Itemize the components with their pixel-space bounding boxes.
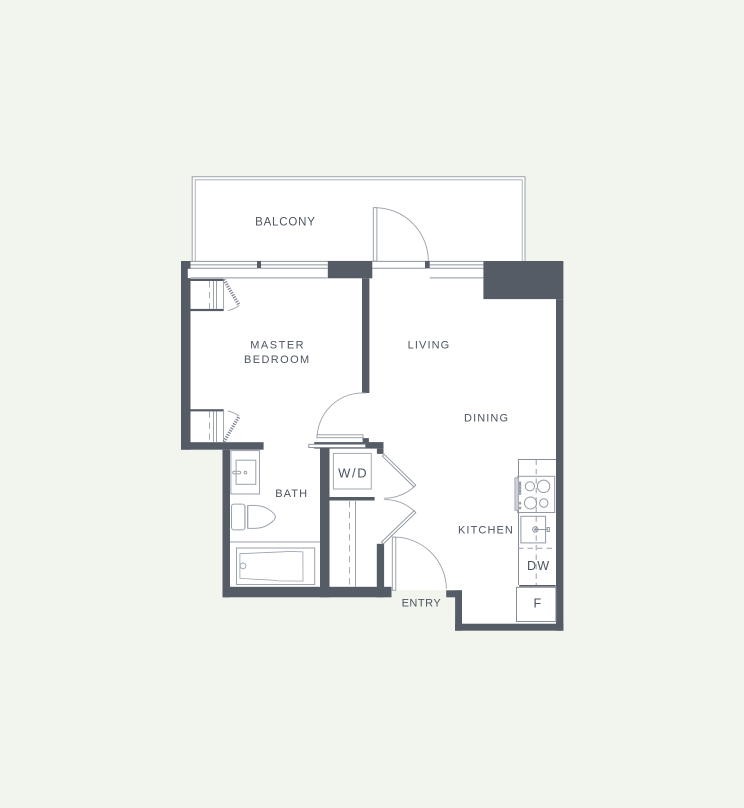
svg-text:W/D: W/D <box>338 465 368 480</box>
svg-text:LIVING: LIVING <box>408 340 451 352</box>
svg-text:ENTRY: ENTRY <box>402 597 442 609</box>
svg-text:BALCONY: BALCONY <box>255 217 316 229</box>
svg-text:KITCHEN: KITCHEN <box>458 525 514 537</box>
svg-text:F: F <box>533 596 541 610</box>
svg-text:MASTER: MASTER <box>250 340 305 352</box>
svg-text:BEDROOM: BEDROOM <box>244 354 311 366</box>
svg-text:DINING: DINING <box>464 413 509 425</box>
svg-text:DW: DW <box>527 559 550 573</box>
svg-text:BATH: BATH <box>275 488 308 500</box>
